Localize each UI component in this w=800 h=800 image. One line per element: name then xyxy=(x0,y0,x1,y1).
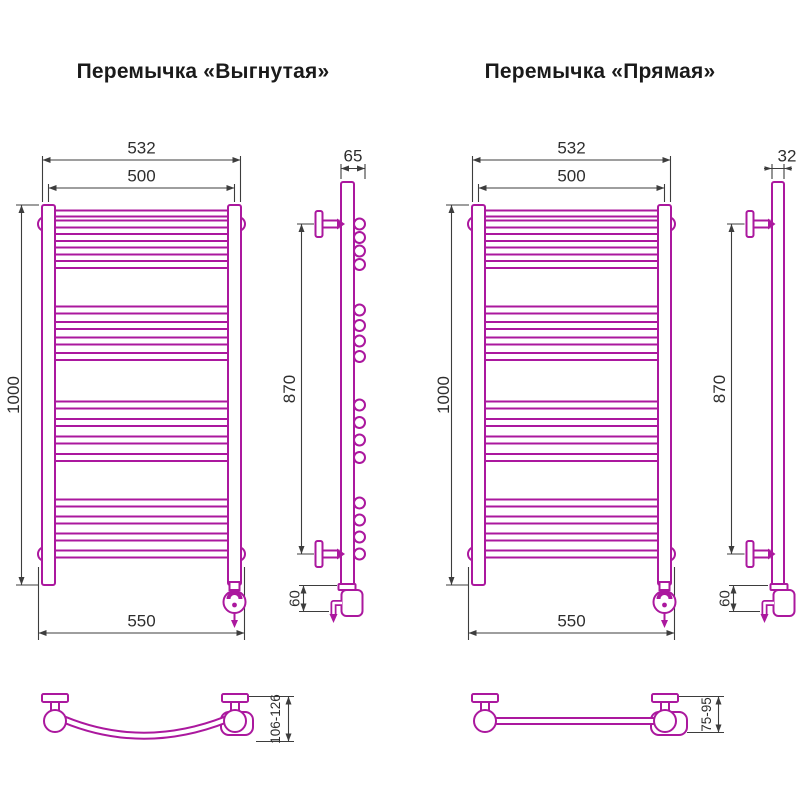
wall-bracket-plate xyxy=(747,541,754,567)
curved-front-view: 532 500 1000 550 xyxy=(4,139,246,641)
dim-label-870: 870 xyxy=(710,375,729,403)
rung xyxy=(482,517,661,524)
dim-label-wall-distance: 106-126 xyxy=(268,694,283,744)
knob-neck xyxy=(660,582,670,590)
post-section xyxy=(474,710,496,732)
rung xyxy=(482,437,661,444)
dim-label-500: 500 xyxy=(127,167,155,186)
dim-label-60: 60 xyxy=(717,590,734,607)
side-rung-bumps xyxy=(354,219,365,560)
rung xyxy=(52,402,231,409)
cable-arrow-icon xyxy=(330,614,338,623)
dim-label-32: 32 xyxy=(778,147,797,166)
elbow-housing xyxy=(774,590,795,616)
dim-label-60: 60 xyxy=(287,590,304,607)
dim-label-870: 870 xyxy=(280,375,299,403)
dim-label-1000: 1000 xyxy=(4,376,23,414)
side-rung-bump xyxy=(354,351,365,362)
knob-dot xyxy=(232,603,237,608)
dim-label-550: 550 xyxy=(127,612,155,631)
wall-bracket-stem xyxy=(323,551,339,558)
side-rung-bump xyxy=(354,232,365,243)
dim-ext-500 xyxy=(479,184,665,202)
side-rung-bump xyxy=(354,515,365,526)
wall-bracket-plate xyxy=(222,694,248,702)
post-section xyxy=(224,710,246,732)
dim-label-532: 532 xyxy=(557,139,585,158)
rung xyxy=(482,402,661,409)
knob-neck xyxy=(230,582,240,590)
rung xyxy=(52,221,231,228)
rung xyxy=(52,353,231,360)
side-rung-bump xyxy=(354,498,365,509)
dim-ext-65 xyxy=(341,164,365,179)
top-rail xyxy=(484,211,659,217)
straight-side-view: 32 870 60 xyxy=(710,147,796,624)
rung xyxy=(482,551,661,558)
rung xyxy=(52,338,231,345)
side-rung-bump xyxy=(354,246,365,257)
rung-group-curved xyxy=(52,221,231,558)
side-rung-bump xyxy=(354,452,365,463)
side-rung-bump xyxy=(354,336,365,347)
dim-label-532: 532 xyxy=(127,139,155,158)
dim-arrow xyxy=(784,166,792,170)
dim-label-1000: 1000 xyxy=(434,376,453,414)
rung xyxy=(482,221,661,228)
rung xyxy=(52,322,231,329)
rung xyxy=(52,307,231,314)
rung xyxy=(482,454,661,461)
rung-group-straight xyxy=(482,221,661,558)
rung xyxy=(52,437,231,444)
left-post xyxy=(472,205,485,585)
rung xyxy=(482,234,661,241)
technical-drawing: 532 500 1000 550 xyxy=(0,0,800,800)
rung xyxy=(482,307,661,314)
wall-bracket-plate xyxy=(747,211,754,237)
side-post xyxy=(772,182,784,585)
rung xyxy=(52,261,231,268)
wall-bracket-plate xyxy=(472,694,498,702)
rung xyxy=(482,534,661,541)
rung xyxy=(482,338,661,345)
right-post xyxy=(228,205,241,585)
curved-crossbar-top-view: 106-126 xyxy=(42,694,294,744)
wall-bracket-plate xyxy=(652,694,678,702)
rung xyxy=(52,517,231,524)
rung xyxy=(52,419,231,426)
side-rung-bump xyxy=(354,219,365,230)
wall-bracket-plate xyxy=(42,694,68,702)
dim-label-550: 550 xyxy=(557,612,585,631)
side-rung-bump xyxy=(354,435,365,446)
cable-arrow-icon xyxy=(231,620,238,628)
wall-bracket-stem xyxy=(323,221,339,228)
rung xyxy=(52,551,231,558)
curved-side-view: 65 870 60 xyxy=(280,147,365,624)
post-section xyxy=(44,710,66,732)
wall-bracket-stem xyxy=(754,551,770,558)
rung xyxy=(52,534,231,541)
dim-label-500: 500 xyxy=(557,167,585,186)
rung xyxy=(52,248,231,255)
knob-dot xyxy=(662,603,667,608)
dim-label-wall-distance: 75-95 xyxy=(699,697,714,732)
drawing-sheet: Перемычка «Выгнутая» Перемычка «Прямая» … xyxy=(0,0,800,800)
side-post xyxy=(341,182,354,585)
wall-bracket-plate xyxy=(316,541,323,567)
rung xyxy=(52,454,231,461)
dim-ext-32 xyxy=(772,164,784,179)
rung xyxy=(482,248,661,255)
side-rung-bump xyxy=(354,320,365,331)
side-rung-bump xyxy=(354,400,365,411)
left-post xyxy=(42,205,55,585)
elbow-housing xyxy=(342,590,363,616)
side-rung-bump xyxy=(354,259,365,270)
dim-ext-870 xyxy=(727,224,745,554)
wall-bracket-stem xyxy=(754,221,770,228)
wall-bracket-plate xyxy=(316,211,323,237)
dim-label-65: 65 xyxy=(344,147,363,166)
rung xyxy=(482,419,661,426)
straight-crossbar-top-view: 75-95 xyxy=(472,694,724,735)
side-rung-bump xyxy=(354,305,365,316)
rung xyxy=(482,322,661,329)
side-rung-bump xyxy=(354,532,365,543)
dim-ext-500 xyxy=(49,184,235,202)
side-rung-bump xyxy=(354,417,365,428)
top-rail xyxy=(54,211,229,217)
rung xyxy=(52,500,231,507)
rung xyxy=(482,261,661,268)
right-post xyxy=(658,205,671,585)
rung xyxy=(52,234,231,241)
rung xyxy=(482,500,661,507)
cable-arrow-icon xyxy=(661,620,668,628)
dim-arrow xyxy=(765,166,773,170)
cable-arrow-icon xyxy=(761,614,769,623)
rung xyxy=(482,353,661,360)
post-section xyxy=(654,710,676,732)
dim-ext-870 xyxy=(297,224,314,554)
side-rung-bump xyxy=(354,549,365,560)
straight-front-view: 532 500 1000 550 xyxy=(434,139,676,641)
